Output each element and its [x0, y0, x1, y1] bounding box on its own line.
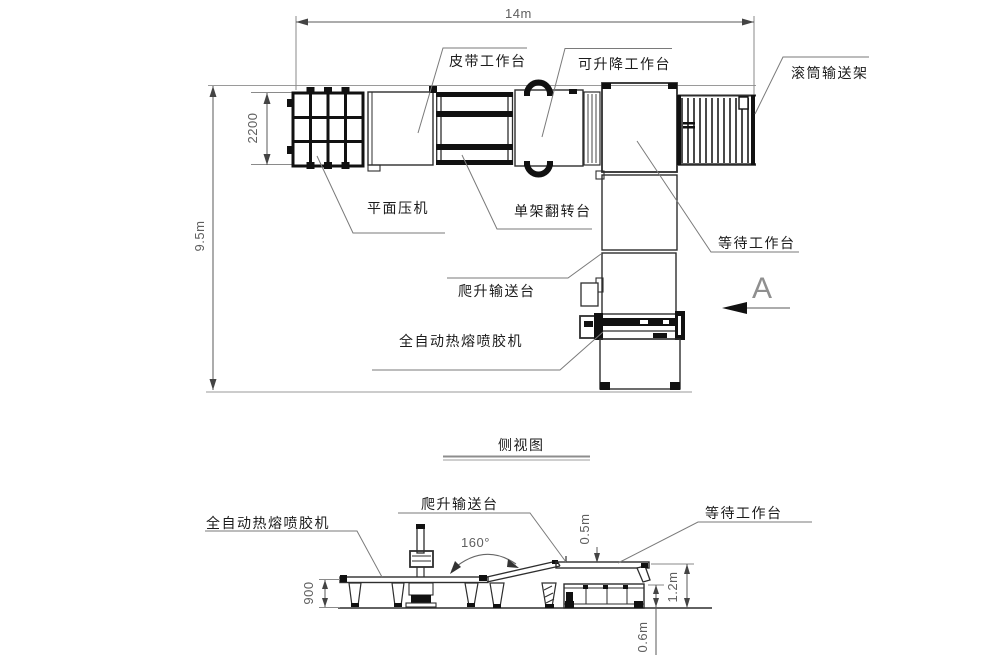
label-flip-table: 单架翻转台 — [514, 203, 592, 219]
glue-machine-gantry — [580, 311, 685, 340]
canvas-background — [0, 0, 1000, 664]
label-lift-table: 可升降工作台 — [578, 56, 671, 72]
label-glue-machine: 全自动热熔喷胶机 — [399, 333, 523, 349]
label-belt-table: 皮带工作台 — [449, 53, 527, 69]
label-flat-press: 平面压机 — [367, 200, 429, 216]
label-climb-conveyor-side: 爬升输送台 — [421, 496, 499, 512]
label-waiting-table-side: 等待工作台 — [705, 505, 783, 521]
dim-ramp-angle-text: 160° — [461, 535, 490, 550]
drawing-canvas: 14m 9.5m 2200 — [0, 0, 1000, 664]
side-view-title: 侧视图 — [498, 437, 545, 453]
dim-0-6m-text: 0.6m — [635, 622, 650, 653]
view-arrow-letter: A — [752, 272, 772, 305]
dim-14m-text: 14m — [505, 6, 532, 21]
technical-drawing: 14m 9.5m 2200 — [0, 0, 1000, 664]
dim-900-text: 900 — [301, 581, 316, 604]
dim-1-2m-text: 1.2m — [665, 572, 680, 603]
label-glue-machine-side: 全自动热熔喷胶机 — [206, 515, 330, 531]
dim-0-5m-text: 0.5m — [577, 514, 592, 545]
label-waiting-table: 等待工作台 — [718, 235, 796, 251]
dim-9-5m-text: 9.5m — [192, 221, 207, 252]
side-control-box — [581, 283, 598, 306]
label-roller-rack: 滚筒输送架 — [791, 65, 869, 81]
label-climb-conveyor: 爬升输送台 — [458, 283, 536, 299]
dim-2200-text: 2200 — [245, 113, 260, 144]
